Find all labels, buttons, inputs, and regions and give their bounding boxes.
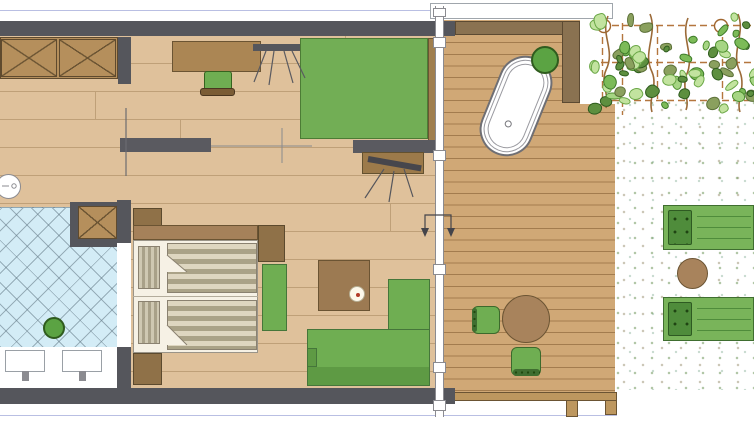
lounger-headrest [668, 302, 692, 336]
wall-shelf [253, 44, 307, 51]
leaf [687, 34, 699, 45]
leaf [614, 59, 626, 72]
sofa-armrest [307, 348, 317, 367]
desk-chair-backrest [200, 88, 235, 96]
leaf [643, 82, 662, 101]
leaf [678, 86, 692, 100]
leaf [732, 35, 750, 53]
cabinet-x-panel [78, 206, 117, 239]
leaf [631, 48, 649, 66]
nightstand [133, 353, 162, 385]
window-mullion [433, 264, 446, 275]
leaf [748, 66, 754, 85]
bed-headboard [133, 225, 258, 240]
leaf [687, 64, 706, 83]
leaf [618, 69, 629, 78]
drawing-reference-line-bottom [0, 415, 617, 416]
terrace-dining-table [502, 295, 550, 343]
leaf [746, 88, 754, 98]
lounger-slat [697, 330, 751, 331]
deck-post [566, 400, 578, 417]
leaf [723, 56, 739, 72]
wall-pier [117, 200, 131, 243]
leaf [639, 22, 654, 34]
lounger-slat [697, 238, 751, 239]
deck-edge-frame [443, 392, 617, 401]
lounger-slat [697, 319, 751, 320]
leaf [678, 53, 693, 63]
sofa-backrest [308, 367, 429, 385]
exterior-wall-bottom [0, 388, 455, 404]
deck-potted-plant [531, 46, 559, 74]
leaf [728, 11, 739, 23]
window-mullion [433, 400, 446, 411]
leaf [707, 45, 719, 59]
bathroom-wall [117, 243, 131, 347]
leaf [714, 38, 729, 54]
leaf [739, 88, 747, 96]
window-mullion [433, 362, 446, 373]
vanity-sink [5, 350, 45, 372]
sliding-partition-panel [120, 138, 211, 152]
leaf [748, 74, 754, 87]
leaf [632, 54, 651, 72]
leaf [627, 62, 641, 71]
faucet [22, 371, 29, 381]
leaf [670, 75, 684, 91]
leaf [718, 48, 733, 61]
lounger-slat [697, 308, 751, 309]
wardrobe-door-panel [59, 39, 116, 77]
drawing-reference-line-top [0, 10, 430, 11]
window-mullion [433, 37, 446, 48]
leaf [701, 40, 712, 52]
leaf [628, 57, 640, 70]
leaf [708, 58, 721, 70]
lounger-slat [697, 216, 751, 217]
vanity-sink [62, 350, 102, 372]
leaf [692, 73, 706, 89]
wardrobe-door-panel [1, 39, 57, 77]
leaf [678, 75, 689, 84]
leaf [623, 56, 636, 71]
terrace-wall-side [562, 21, 580, 103]
green-ottoman [262, 264, 287, 331]
leaf [662, 45, 670, 54]
wall-pier [117, 347, 131, 389]
deck-post [605, 400, 617, 415]
leaf [617, 39, 632, 56]
leaf [732, 29, 740, 38]
leaf [629, 52, 641, 61]
platform-daybed [300, 38, 428, 139]
faucet [79, 371, 86, 381]
bed-divider [133, 296, 258, 297]
leaf [662, 73, 678, 87]
leaf [616, 55, 624, 65]
climbing-vines [604, 14, 742, 112]
pillow [138, 246, 160, 289]
glass-window-wall [435, 6, 444, 417]
plank-joint [390, 204, 391, 232]
leaf [626, 13, 634, 27]
decor-dot [356, 293, 360, 297]
leaf [620, 46, 630, 56]
potted-plant [43, 317, 65, 339]
leaf [723, 77, 739, 92]
nightstand [258, 225, 285, 262]
coffee-table [318, 260, 370, 311]
terrace-chair-backrest [472, 308, 477, 332]
leaf [688, 67, 702, 78]
leaf [711, 67, 724, 81]
leaf [741, 20, 751, 30]
exterior-wall-top [0, 21, 455, 36]
floor-plan [0, 0, 754, 435]
decor-plate [349, 286, 365, 302]
lounger-headrest [668, 210, 692, 245]
terrace-corner-cutout [580, 20, 615, 104]
terrace-chair-backrest [513, 369, 540, 376]
pillow [138, 301, 160, 344]
leaf [628, 44, 643, 59]
upper-building-edge [430, 3, 613, 19]
window-mullion [433, 150, 446, 161]
plank-joint [95, 92, 96, 120]
window-mullion [433, 8, 446, 17]
leaf [678, 69, 687, 83]
leaf [630, 57, 643, 69]
pergola-posts [598, 20, 728, 33]
desk [172, 41, 261, 72]
lounger-side-table [677, 258, 708, 289]
leaf [719, 67, 735, 79]
leaf [661, 61, 678, 79]
lounger-slat [697, 227, 751, 228]
leaf [613, 84, 626, 97]
leaf [632, 58, 648, 75]
leaf [659, 42, 672, 51]
leaf [736, 39, 750, 51]
leaf [633, 61, 646, 73]
wall-pier [118, 37, 131, 84]
leaf [715, 23, 730, 38]
